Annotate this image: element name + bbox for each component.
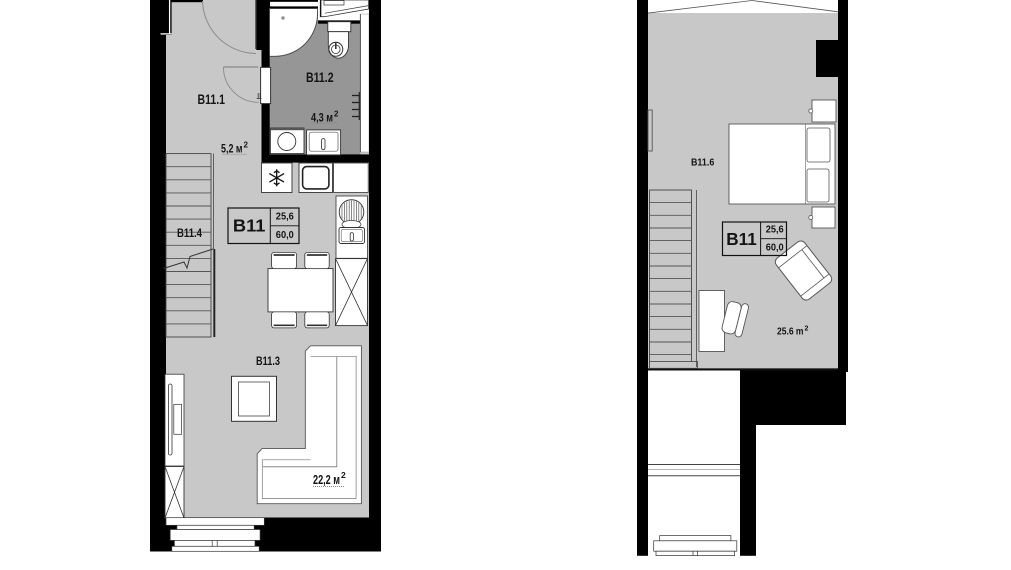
svg-text:B11.3: B11.3: [256, 354, 280, 368]
svg-text:B11: B11: [233, 215, 266, 235]
svg-text:60,0: 60,0: [766, 242, 784, 253]
svg-text:B11.6: B11.6: [691, 156, 714, 168]
svg-text:25.6 m: 25.6 m: [777, 327, 804, 338]
svg-text:5,2 м: 5,2 м: [221, 142, 243, 156]
svg-text:2: 2: [244, 141, 249, 150]
svg-text:22,2 м: 22,2 м: [313, 472, 340, 487]
svg-text:B11.1: B11.1: [198, 92, 226, 107]
svg-text:B11.4: B11.4: [177, 228, 202, 240]
svg-text:2: 2: [334, 109, 339, 118]
svg-text:25,6: 25,6: [276, 212, 294, 223]
svg-text:2: 2: [341, 470, 346, 480]
svg-text:60,0: 60,0: [276, 230, 294, 241]
svg-text:2: 2: [805, 326, 809, 333]
svg-text:B11: B11: [726, 229, 757, 249]
svg-text:B11.2: B11.2: [306, 70, 334, 85]
svg-text:4,3 м: 4,3 м: [311, 110, 333, 124]
svg-text:25,6: 25,6: [766, 224, 784, 235]
